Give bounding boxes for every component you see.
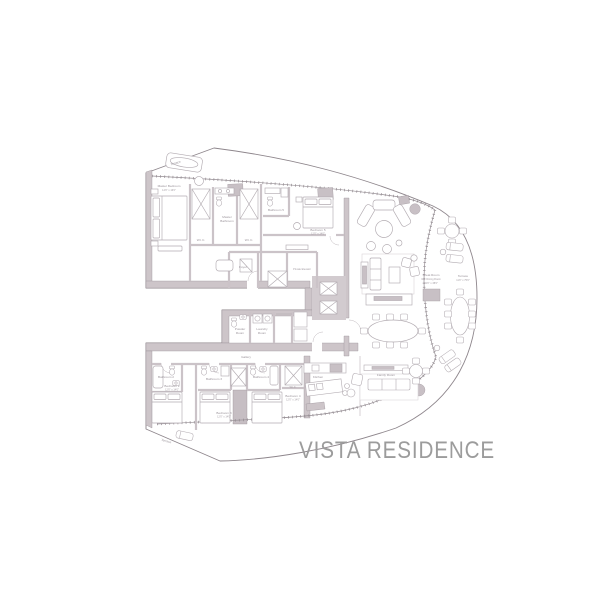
- label-bedroom4: Bedroom 4: [285, 394, 300, 398]
- label-wic-right: W.I.C.: [245, 238, 254, 242]
- label-laundry-2: Room: [258, 331, 267, 335]
- label-bathroom2: Bathroom 2: [158, 375, 174, 379]
- label-bedroom5-dims: 12'0" x 14'0": [311, 233, 325, 236]
- label-wic-left: W.I.C.: [197, 238, 206, 242]
- label-bedroom5: Bedroom 5: [310, 228, 325, 232]
- label-great-room-3: 24'0" x 38'0": [424, 282, 438, 285]
- label-terrace-right-1: Terrace: [458, 274, 469, 278]
- label-bathroom3: Bathroom 3: [206, 377, 222, 381]
- label-bedroom2-dims: 12'0" x 14'0": [165, 389, 179, 392]
- label-bedroom3-dims: 12'0" x 14'0": [217, 416, 231, 419]
- label-master-bath-2: Bathroom: [220, 219, 234, 223]
- label-terrace-bottom: Terrace: [161, 438, 172, 444]
- label-bedroom4-dims: 12'0" x 14'0": [286, 399, 300, 402]
- label-gallery: Gallery: [241, 355, 251, 359]
- floor-plan-page: Terrace Master Bedroom 14'0" x 16'0" W.I…: [0, 0, 600, 600]
- kitchen-family-furniture: [304, 363, 418, 400]
- label-private-elevator: Private Elevator: [293, 268, 311, 271]
- label-bedroom3: Bedroom 3: [216, 411, 231, 415]
- label-bathroom5: Bathroom 5: [268, 208, 284, 212]
- label-wic-lower: W.I.C.: [290, 386, 297, 389]
- label-powder-2: Room: [236, 331, 245, 335]
- label-bedroom2: Bedroom 2: [164, 384, 179, 388]
- label-kitchen: Kitchen: [313, 375, 324, 379]
- label-family-room: Family Room: [377, 373, 396, 377]
- great-room-furniture: [356, 200, 425, 348]
- floor-plan-drawing: Terrace Master Bedroom 14'0" x 16'0" W.I…: [0, 0, 600, 600]
- label-master-bedroom-dims: 14'0" x 16'0": [162, 189, 176, 192]
- label-bathroom4: Bathroom 4: [253, 375, 269, 379]
- label-foyer: Foyer: [239, 265, 247, 269]
- label-great-room-1: Great Room: [423, 273, 440, 277]
- label-master-bedroom: Master Bedroom: [158, 184, 181, 188]
- label-great-room-2: Incl. Dining Room: [421, 278, 441, 281]
- residence-title: VISTA RESIDENCE: [299, 437, 495, 465]
- label-terrace-right-2: 11'0" x 75'0": [456, 279, 470, 282]
